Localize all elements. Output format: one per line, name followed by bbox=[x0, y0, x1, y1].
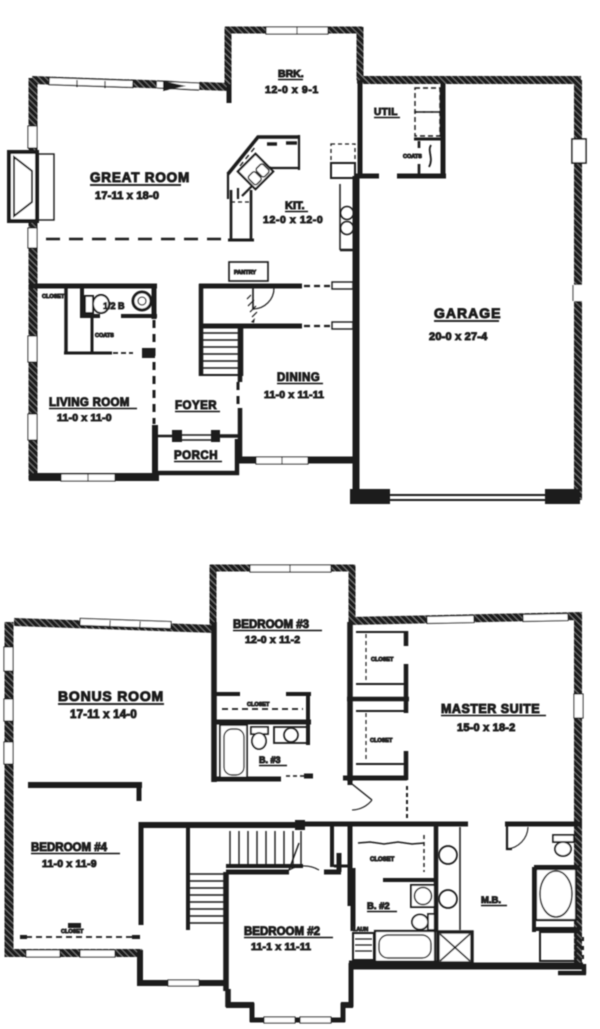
svg-text:UTIL: UTIL bbox=[374, 107, 398, 118]
svg-text:B. #2: B. #2 bbox=[367, 901, 390, 912]
svg-text:GREAT ROOM: GREAT ROOM bbox=[90, 170, 190, 185]
svg-text:BEDROOM #2: BEDROOM #2 bbox=[244, 926, 320, 938]
svg-text:DINING: DINING bbox=[277, 372, 320, 384]
svg-text:KIT.: KIT. bbox=[285, 200, 305, 212]
svg-text:BRK.: BRK. bbox=[278, 68, 304, 80]
svg-text:LIVING ROOM: LIVING ROOM bbox=[49, 397, 130, 409]
svg-text:11-0 x 11-9: 11-0 x 11-9 bbox=[42, 858, 97, 870]
svg-text:PANTRY: PANTRY bbox=[234, 270, 256, 276]
svg-text:FOYER: FOYER bbox=[175, 400, 217, 412]
svg-text:12-0 x 9-1: 12-0 x 9-1 bbox=[265, 84, 319, 96]
svg-text:CLOSET: CLOSET bbox=[247, 702, 270, 708]
svg-text:CLOSET: CLOSET bbox=[371, 657, 394, 663]
svg-text:1/2 B: 1/2 B bbox=[103, 301, 125, 311]
svg-text:CLOSET: CLOSET bbox=[61, 929, 84, 935]
svg-text:CLOSET: CLOSET bbox=[370, 857, 395, 863]
svg-text:20-0 x 27-4: 20-0 x 27-4 bbox=[429, 331, 488, 343]
svg-text:BEDROOM #4: BEDROOM #4 bbox=[31, 842, 108, 854]
svg-text:17-11 x 14-0: 17-11 x 14-0 bbox=[70, 709, 137, 721]
svg-text:12-0 x 11-2: 12-0 x 11-2 bbox=[245, 634, 300, 646]
svg-text:CLOSET: CLOSET bbox=[42, 294, 65, 300]
svg-text:15-0 x 18-2: 15-0 x 18-2 bbox=[457, 722, 515, 734]
svg-text:CLOSET: CLOSET bbox=[370, 738, 393, 744]
svg-text:BONUS ROOM: BONUS ROOM bbox=[58, 688, 164, 704]
svg-text:GARAGE: GARAGE bbox=[434, 305, 501, 321]
svg-text:11-0 x 11-11: 11-0 x 11-11 bbox=[264, 389, 324, 401]
svg-text:11-1 x 11-11: 11-1 x 11-11 bbox=[251, 941, 311, 953]
svg-text:17-11 x 18-0: 17-11 x 18-0 bbox=[95, 190, 159, 202]
svg-text:PORCH: PORCH bbox=[174, 450, 218, 462]
svg-text:BEDROOM #3: BEDROOM #3 bbox=[233, 619, 309, 631]
svg-text:11-0 x 11-0: 11-0 x 11-0 bbox=[57, 412, 112, 424]
svg-text:B. #3: B. #3 bbox=[259, 755, 281, 765]
svg-text:COATS: COATS bbox=[95, 333, 114, 339]
svg-text:12-0 x 12-0: 12-0 x 12-0 bbox=[263, 214, 323, 226]
svg-text:COATS: COATS bbox=[403, 154, 422, 160]
svg-text:M.B.: M.B. bbox=[481, 895, 501, 906]
svg-text:MASTER SUITE: MASTER SUITE bbox=[441, 702, 540, 716]
svg-text:LAUN: LAUN bbox=[353, 927, 368, 933]
